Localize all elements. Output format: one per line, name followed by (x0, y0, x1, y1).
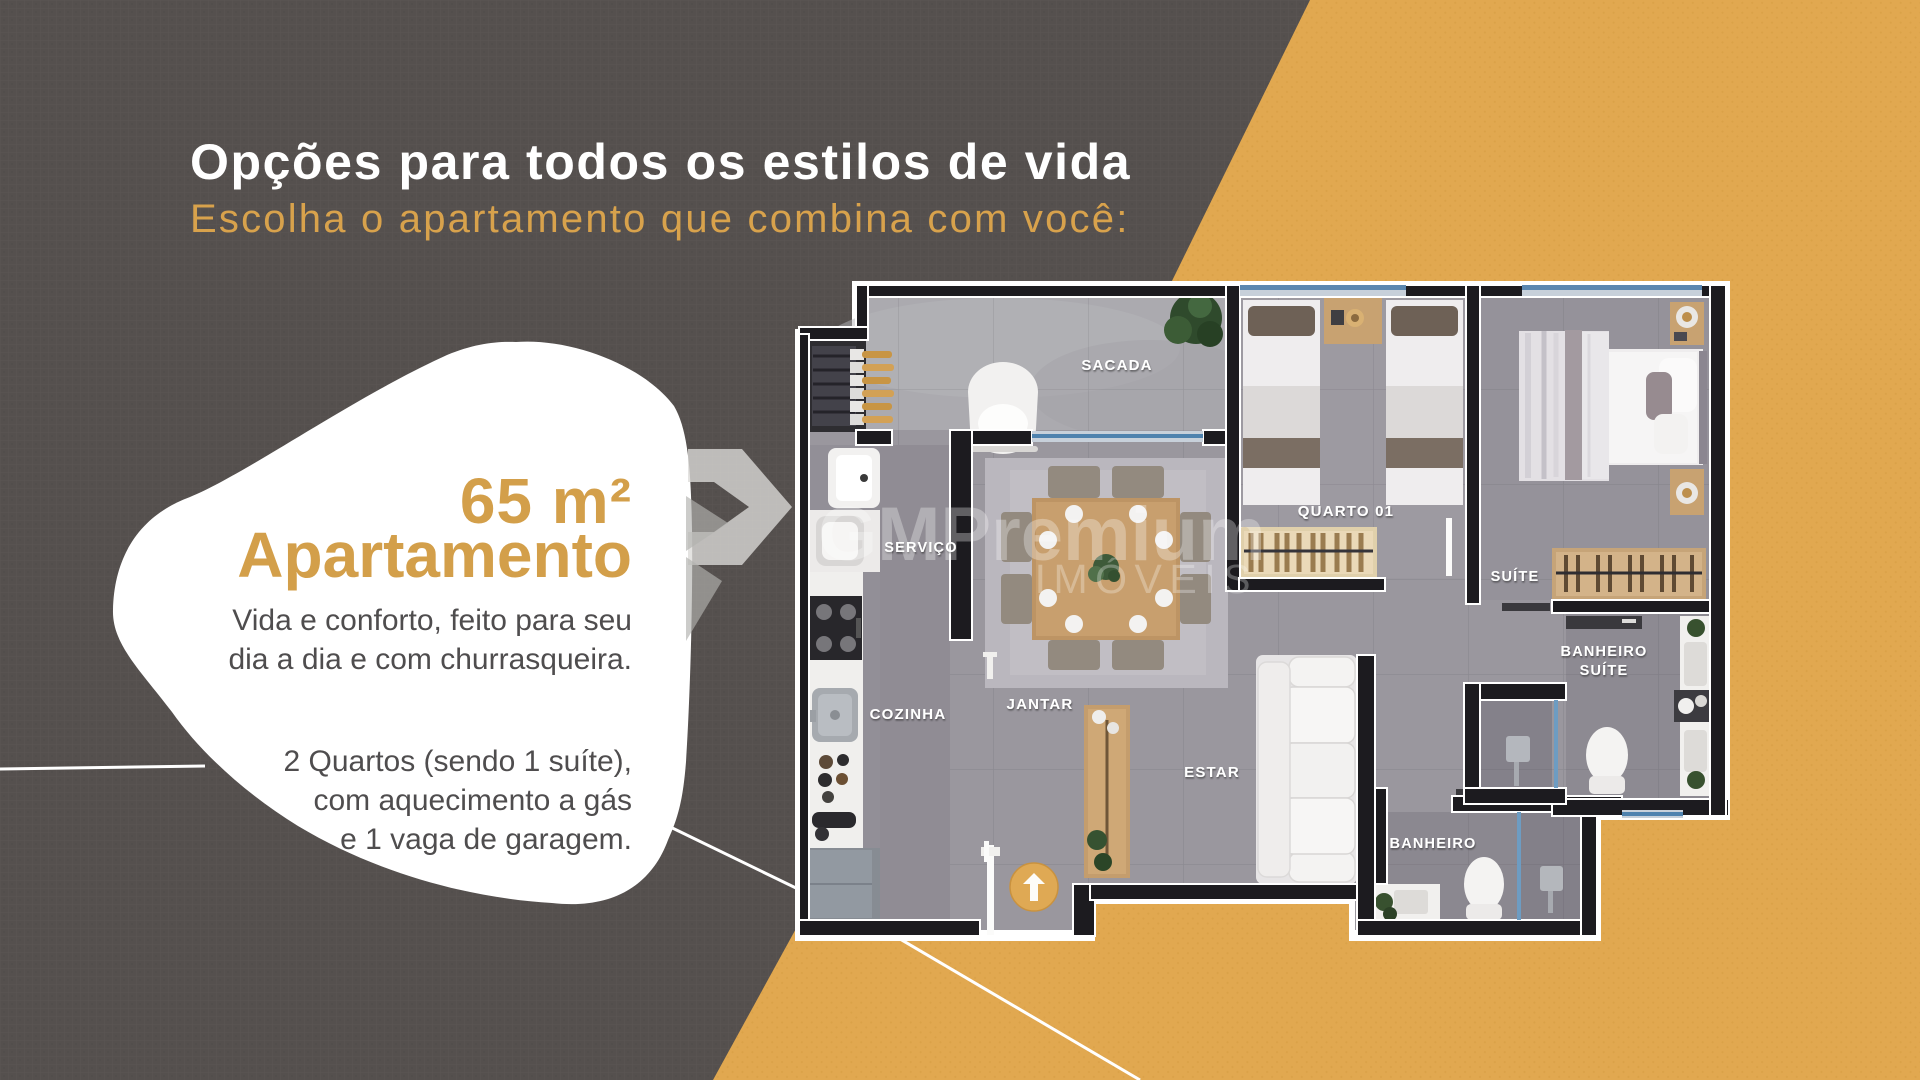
svg-text:IMÓVEIS: IMÓVEIS (1035, 556, 1258, 602)
